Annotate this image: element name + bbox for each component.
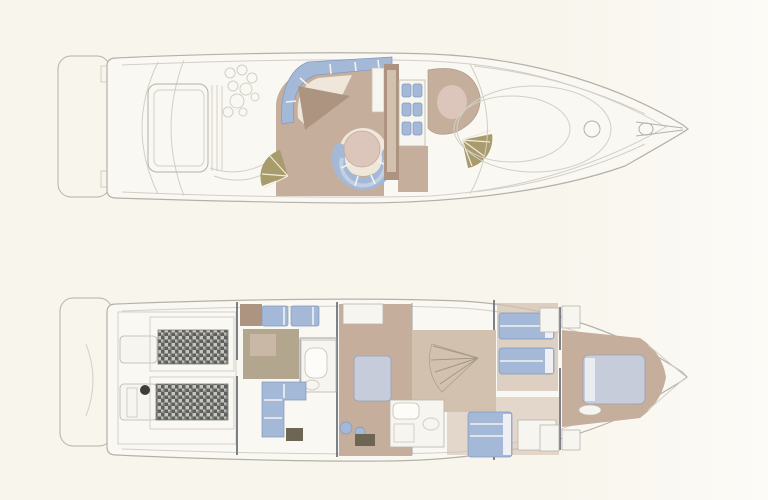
day-head [390, 400, 444, 447]
platform-curve [86, 344, 93, 416]
starboard-engine [158, 330, 228, 364]
galley-stool [340, 422, 352, 434]
vip-pillow [585, 358, 595, 401]
appliance [413, 103, 422, 116]
forward-closet [562, 430, 580, 450]
engine-room-locker [120, 384, 157, 420]
forward-closet [540, 425, 559, 451]
day-head-sink [393, 403, 419, 419]
appliance [402, 122, 411, 135]
main-deck-plan [58, 53, 688, 203]
swim-platform-lower [60, 298, 112, 446]
salon-pillar [372, 68, 384, 112]
forward-closet [540, 308, 559, 332]
galley-counter [343, 304, 383, 324]
vip-seat [579, 405, 601, 415]
swim-platform [58, 56, 110, 197]
appliance [402, 103, 411, 116]
deck-plan-canvas [0, 0, 768, 500]
aft-head-shower [305, 348, 327, 378]
appliance [402, 84, 411, 97]
mid-cabin-pillow [503, 414, 511, 455]
aft-cabin-cabinet [240, 304, 262, 326]
port-engine [156, 384, 228, 420]
wet-bar [399, 80, 425, 146]
lower-deck-plan [60, 298, 687, 461]
dinette [338, 128, 388, 186]
appliance [413, 84, 422, 97]
aft-cabin-rug [250, 334, 276, 356]
forward-closet [562, 306, 580, 328]
aft-cabin-table [286, 428, 303, 441]
helm-floor [398, 146, 428, 192]
dinette-island [354, 356, 391, 401]
engine-room-locker [120, 336, 157, 363]
appliance [413, 122, 422, 135]
twin-bed-pillow [545, 349, 553, 373]
engine-fitting [140, 385, 150, 395]
galley-block [355, 434, 375, 446]
yacht-deck-plan-figure [0, 0, 768, 500]
salon-cabinet-top [387, 70, 396, 172]
dinette-round-table [344, 131, 380, 167]
helm-seat-cushion [437, 85, 467, 119]
aft-berth [291, 306, 319, 326]
